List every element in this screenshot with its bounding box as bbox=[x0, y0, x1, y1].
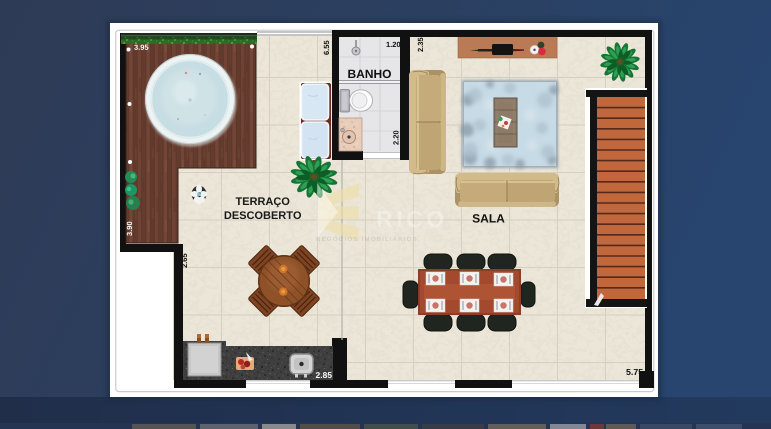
svg-text:NEGÓCIOS IMOBILIÁRIOS: NEGÓCIOS IMOBILIÁRIOS bbox=[316, 235, 418, 243]
svg-text:RICO: RICO bbox=[376, 206, 448, 232]
